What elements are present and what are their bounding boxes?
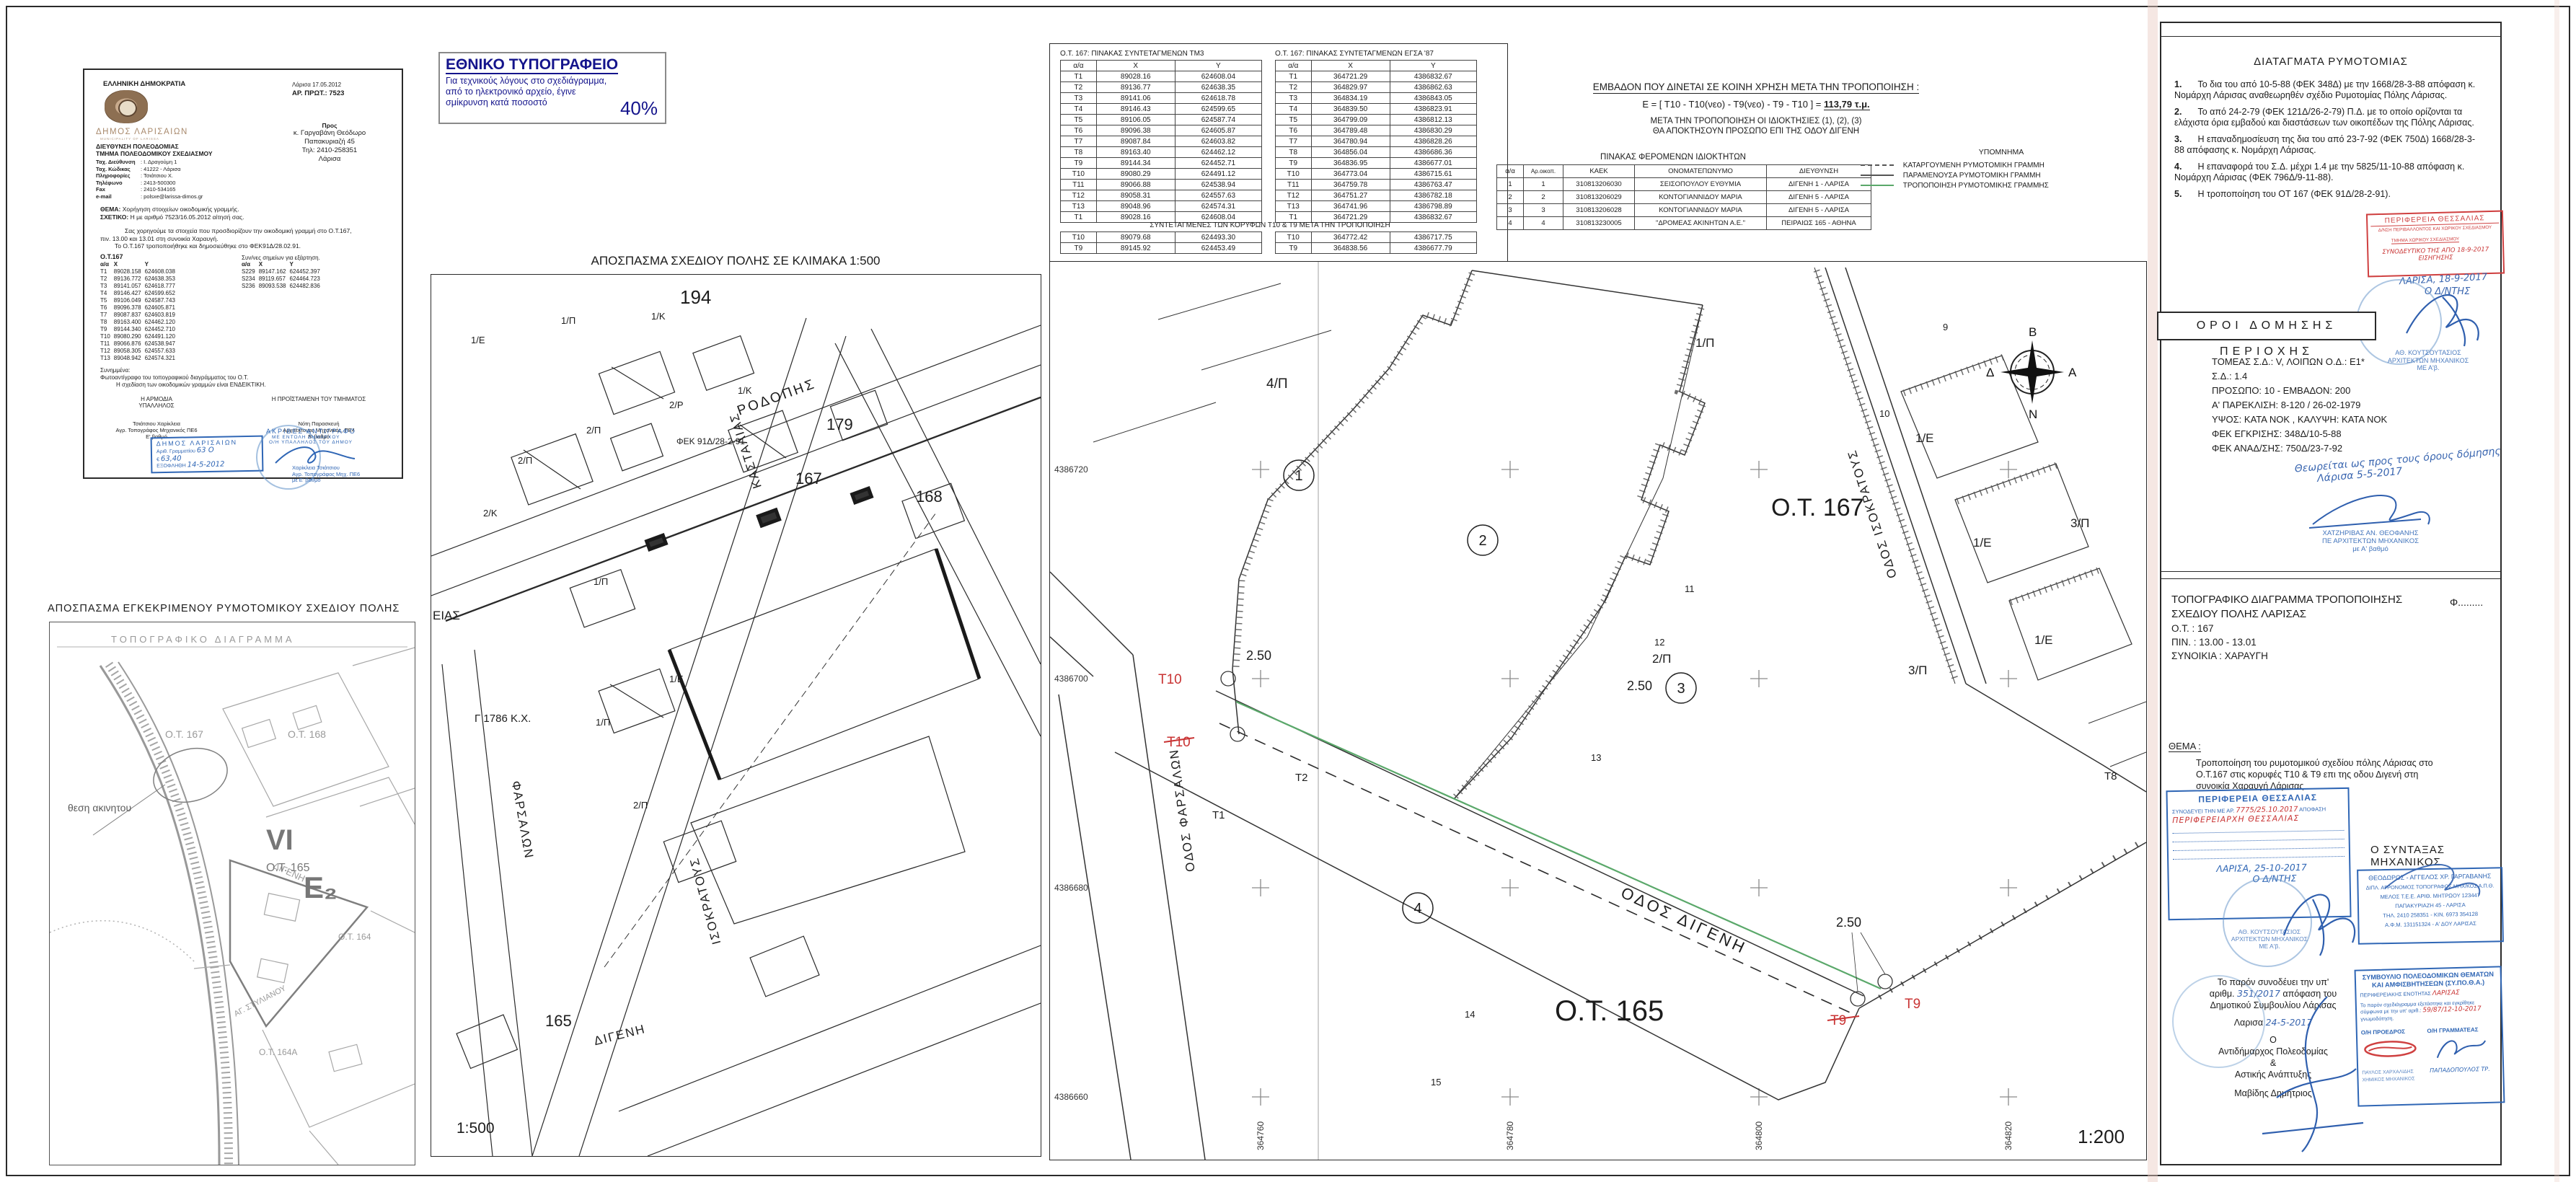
vertex-circles [1221,671,1892,1006]
building-term: Α' ΠΑΡΕΚΛΙΣΗ: 8-120 / 26-02-1979 [2212,398,2387,413]
svg-text:Γ 1786 Κ.Χ.: Γ 1786 Κ.Χ. [475,713,531,725]
svg-text:ΔΙΓΕΝΗ: ΔΙΓΕΝΗ [593,1022,648,1048]
building-terms-list: ΤΟΜΕΑΣ Σ.Δ.: V, ΛΟΙΠΩΝ Ο.Δ.: Ε1*Σ.Δ.: 1.… [2212,355,2387,456]
building-term: ΤΟΜΕΑΣ Σ.Δ.: V, ΛΟΙΠΩΝ Ο.Δ.: Ε1* [2212,355,2387,369]
legend-item-abolished: ΚΑΤΑΡΓΟΥΜΕΝΗ ΡΥΜΟΤΟΜΙΚΗ ΓΡΑΜΜΗ [1861,161,2142,171]
letter-contact-block: Ταχ. Διεύθυνση: Ι. Δραγούμη 1Ταχ. Κώδικα… [96,159,203,200]
letter-thema: ΘΕΜΑ: Χορήγηση στοιχείων οικοδομικής γρα… [100,206,239,213]
legend-title: ΥΠΟΜΝΗΜΑ [1861,148,2142,156]
ethniko-percent: 40% [620,97,658,120]
svg-text:1/Ε: 1/Ε [669,674,684,684]
letter-dept2: ΤΜΗΜΑ ΠΟΛΕΟΔΟΜΙΚΟΥ ΣΧΕΔΙΑΣΜΟΥ [96,150,213,157]
abolished-line [1219,723,1856,1015]
svg-text:2.50: 2.50 [1246,648,1271,663]
dashed-line-swatch [1861,164,1894,166]
signature-4 [2378,852,2486,903]
svg-text:VI: VI [266,824,294,856]
letter-attachments: Συνημμένα: Φωτοαντίγραφο του τοπογραφικο… [100,367,266,389]
svg-text:4386680: 4386680 [1054,883,1088,893]
building-terms-titlebox: ΟΡΟΙ ΔΟΜΗΣΗΣ ΠΕΡΙΟΧΗΣ [2157,312,2376,340]
area-formula: Ε = [ Τ10 - Τ10(νεο) - Τ9(νεο) - Τ9 - Τ1… [1507,99,2005,110]
sypotha-signatures [2361,1035,2492,1064]
svg-text:ΙΣΟΚΡΑΤΟΥΣ: ΙΣΟΚΡΑΤΟΥΣ [687,855,724,945]
letter-coord-row: Τ389141.057624618.777 [100,283,179,290]
svg-text:364760: 364760 [1256,1121,1266,1150]
svg-text:364800: 364800 [1754,1121,1764,1150]
signature-5 [2248,989,2370,1155]
tm3-row: Τ1189066.88624538.94 [1061,180,1262,190]
svg-text:Δ: Δ [1986,366,1994,379]
letter-sxetiko: ΣΧΕΤΙΚΟ: Η με αριθμό 7523/16.05.2012 αίτ… [100,213,244,221]
svg-text:179: 179 [826,415,853,433]
egsa-row: Τ8364856.044386686.36 [1276,147,1477,158]
modified-green-line [1236,702,1881,989]
svg-text:Ο.Τ. 164Α: Ο.Τ. 164Α [259,1047,297,1057]
sypotha-stamp: ΣΥΜΒΟΥΛΙΟ ΠΟΛΕΟΔΟΜΙΚΩΝ ΘΕΜΑΤΩΝ ΚΑΙ ΑΜΦΙΣ… [2355,966,2505,1106]
thema-text: Τροποποίηση του ρυμοτομικού σχεδίου πόλη… [2196,757,2470,792]
letter-protocol: ΑΡ. ΠΡΩΤ.: 7523 [292,89,344,97]
scan-artifact-band [2148,0,2158,1182]
letter-body: Σας χορηγούμε τα στοιχεία που προσδιορίζ… [100,227,389,250]
tm3-after-row: Τ1089079.68624493.30 [1061,232,1262,243]
svg-text:Ν: Ν [2029,407,2037,421]
svg-text:2: 2 [1478,533,1486,549]
approved-map-title: ΑΠΟΣΠΑΣΜΑ ΕΓΚΕΚΡΙΜΕΝΟΥ ΡΥΜΟΤΟΜΙΚΟΥ ΣΧΕΔΙ… [48,603,400,614]
svg-text:14: 14 [1465,1009,1475,1020]
tm3-after-table: Τ1089079.68624493.30Τ989145.92624453.49 [1060,231,1262,254]
tm3-row: Τ389141.06624618.78 [1061,93,1262,104]
svg-text:364780: 364780 [1505,1121,1515,1150]
building-term: ΥΨΟΣ: ΚΑΤΑ ΝΟΚ , ΚΑΛΥΨΗ: ΚΑΤΑ ΝΟΚ [2212,413,2387,427]
svg-text:1/Κ: 1/Κ [651,311,666,322]
svg-text:2/Π: 2/Π [518,455,532,466]
svg-text:ΑΓ. ΣΤΥΛΙΑΝΟΥ: ΑΓ. ΣΤΥΛΙΑΝΟΥ [233,984,288,1018]
building-term: ΠΡΟΣΩΠΟ: 10 - ΕΜΒΑΔΟΝ: 200 [2212,384,2387,398]
decree-item: 1.Το δια του από 10-5-88 (ΦΕΚ 348Δ) με τ… [2174,79,2484,101]
egsa-row: Τ5364799.094386812.13 [1276,115,1477,125]
letter-coord-row: Τ889163.400624462.120 [100,319,179,326]
approved-map-frame: ΤΟΠΟΓΡΑΦΙΚΟ ΔΙΑΓΡΑΜΜΑ Ο [49,622,415,1165]
thema-label: ΘΕΜΑ : [2169,741,2201,752]
svg-text:θεση ακινητου: θεση ακινητου [68,802,131,813]
svg-text:3: 3 [1677,681,1685,697]
ethniko-line1: Για τεχνικούς λόγους στο σχεδιάγραμμα, [446,76,659,87]
egsa-row: Τ1364721.294386832.67 [1276,71,1477,82]
fee-stamp: ΔΗΜΟΣ ΛΑΡΙΣΑΙΩΝ Αριθ. Γραμματίου 63 Ο € … [151,436,264,474]
tm3-row: Τ989144.34624452.71 [1061,158,1262,169]
tm3-row: Τ289136.77624638.35 [1061,82,1262,93]
svg-text:2/Π: 2/Π [1652,652,1671,666]
decrees-list: 1.Το δια του από 10-5-88 (ΦΕΚ 348Δ) με τ… [2174,79,2484,206]
letter-coord-row: Τ689096.378624605.871 [100,304,179,312]
svg-text:Τ10: Τ10 [1167,735,1191,750]
svg-text:1/Κ: 1/Κ [738,385,752,396]
topo-title-block: ΤΟΠΟΓΡΑΦΙΚΟ ΔΙΑΓΡΑΜΜΑ ΤΡΟΠΟΠΟΙΗΣΗΣ ΣΧΕΔΙ… [2171,593,2402,663]
letter-dep-row: S23689093.538624482.836 [242,283,324,290]
svg-text:Τ9: Τ9 [1830,1013,1846,1028]
letter-coord-row: Τ1089080.290624491.120 [100,333,179,340]
letter-date: Λάρισα 17.05.2012 [292,81,341,88]
tm3-title: Ο.Τ. 167: ΠΙΝΑΚΑΣ ΣΥΝΤΕΤΑΓΜΕΝΩΝ ΤΜ3 [1060,50,1204,58]
owner-row: 11310813206030ΣΕΙΣΟΠΟΥΛΟΥ ΕΥΘΥΜΙΑΔΙΓΕΝΗ … [1497,178,1871,191]
svg-text:1: 1 [1294,468,1302,484]
svg-text:2/Κ: 2/Κ [483,508,498,519]
tm3-after-row: Τ989145.92624453.49 [1061,243,1262,254]
svg-text:9: 9 [1943,322,1948,332]
svg-text:13: 13 [1591,752,1601,763]
svg-text:12: 12 [1654,637,1664,648]
svg-text:ΚΑΣΤΑΛΙΑΣ: ΚΑΣΤΑΛΙΑΣ [727,411,764,490]
svg-text:ΤΟΠΟΓΡΑΦΙΚΟ ΔΙΑΓΡΑΜΜΑ: ΤΟΠΟΓΡΑΦΙΚΟ ΔΙΑΓΡΑΜΜΑ [111,634,295,645]
svg-text:2.50: 2.50 [1627,679,1652,693]
svg-text:Ο.Τ. 168: Ο.Τ. 168 [288,728,326,740]
area-note: ΕΜΒΑΔΟΝ ΠΟΥ ΔΙΝΕΤΑΙ ΣΕ ΚΟΙΝΗ ΧΡΗΣΗ ΜΕΤΑ … [1507,81,2005,136]
copy-stamp-name: Χαρίκλεια ΤσιάτσιουΑγρ. Τοπογράφος Μηχ. … [292,465,360,484]
egsa-row: Τ12364751.274386782.18 [1276,190,1477,201]
letter-dep-table: α/αΧΥ S22989147.162624452.397S23489119.6… [242,261,324,290]
decree-item: 5.Η τροποποίηση του ΟΤ 167 (ΦΕΚ 91Δ/28-2… [2174,189,2484,200]
tm3-row: Τ889163.40624462.12 [1061,147,1262,158]
decrees-title: ΔΙΑΤΑΓΜΑΤΑ ΡΥΜΟΤΟΜΙΑΣ [2161,56,2500,68]
svg-text:1/Ε: 1/Ε [1973,536,1992,550]
svg-text:2/Ρ: 2/Ρ [669,400,684,410]
legend: ΥΠΟΜΝΗΜΑ ΚΑΤΑΡΓΟΥΜΕΝΗ ΡΥΜΟΤΟΜΙΚΗ ΓΡΑΜΜΗ … [1861,148,2142,191]
letter-coord-row: Τ1289058.305624557.633 [100,348,179,355]
coord-tables-panel: Ο.Τ. 167: ΠΙΝΑΚΑΣ ΣΥΝΤΕΤΑΓΜΕΝΩΝ ΤΜ3 α/αΧ… [1049,43,1508,267]
tm3-row: Τ689096.38624605.87 [1061,125,1262,136]
svg-text:1/Ε: 1/Ε [471,335,485,345]
svg-text:Β: Β [2029,325,2037,339]
architect-stamp: ΧΑΤΖΗΡΙΒΑΣ ΑΝ. ΘΕΟΦΑΝΗΣΠΕ ΑΡΧΙΤΕΚΤΩΝ ΜΗΧ… [2291,529,2450,553]
svg-text:Ο.Τ. 167: Ο.Τ. 167 [165,728,203,740]
scan-artifact-band-right [2554,0,2559,1182]
letter-coord-row: Τ489146.427624599.652 [100,290,179,297]
ethniko-line2: από το ηλεκτρονικό αρχείο, έγινε [446,87,659,97]
svg-text:4386660: 4386660 [1054,1092,1088,1102]
decree-item: 2.Το από 24-2-79 (ΦΕΚ 121Δ/26-2-79) Π.Δ.… [2174,107,2484,128]
map500-drawing: 1/Ε 1/Π 1/Κ 2/Π 2/Ρ 1/Κ 2/Π 2/Κ 1/Π 1/Π … [431,275,1041,1156]
svg-text:15: 15 [1431,1077,1441,1088]
svg-text:ΟΔΟΣ ΔΙΓΕΝΗ: ΟΔΟΣ ΔΙΓΕΝΗ [1618,883,1750,958]
letter-coord-row: Τ189028.158624608.038 [100,268,179,275]
letter-dept1: ΔΙΕΥΘΥΝΣΗ ΠΟΛΕΟΔΟΜΙΑΣ [96,143,179,150]
signature-3 [2273,878,2367,957]
egsa-row: Τ6364789.484386830.29 [1276,125,1477,136]
building-term: Σ.Δ.: 1.4 [2212,369,2387,384]
svg-text:1/Π: 1/Π [594,576,608,587]
national-printing-office-note: ΕΘΝΙΚΟ ΤΥΠΟΓΡΑΦΕΙΟ Για τεχνικούς λόγους … [438,52,666,124]
municipality-logo [105,90,148,123]
svg-text:1:500: 1:500 [456,1120,495,1137]
letter-dep-row: S22989147.162624452.397 [242,268,324,275]
svg-text:1/Ε: 1/Ε [2034,633,2053,647]
letter-municipality: ΔΗΜΟΣ ΛΑΡΙΣΑΙΩΝ [96,128,188,136]
svg-text:Τ2: Τ2 [1295,772,1308,784]
svg-text:1/Π: 1/Π [561,315,575,326]
svg-text:4386700: 4386700 [1054,674,1088,684]
building-term: ΦΕΚ ΕΓΚΡΙΣΗΣ: 348Δ/10-5-88 [2212,427,2387,441]
building-term: ΦΕΚ ΑΝΑΔ/ΣΗΣ: 750Δ/23-7-92 [2212,441,2387,456]
legend-item-remaining: ΠΑΡΑΜΕΝΟΥΣΑ ΡΥΜΟΤΟΜΙΚΗ ΓΡΑΜΜΗ [1861,171,2142,181]
signature-2 [2306,485,2435,535]
egsa-row: Τ2364829.974386862.63 [1276,82,1477,93]
tm3-row: Τ189028.16624608.04 [1061,71,1262,82]
egsa-after-table: Τ10364772.424386717.75Τ9364838.564386677… [1275,231,1477,254]
svg-text:ΦΑΡΣΑΛΩΝ: ΦΑΡΣΑΛΩΝ [509,780,537,860]
svg-text:ΟΔΟΣ ΦΑΡΣΑΛΩΝ: ΟΔΟΣ ΦΑΡΣΑΛΩΝ [1167,748,1198,873]
egsa-after-row: Τ10364772.424386717.75 [1276,232,1477,243]
letter-dep-row: S23489119.657624464.723 [242,275,324,283]
right-column: ΔΙΑΤΑΓΜΑΤΑ ΡΥΜΟΤΟΜΙΑΣ 1.Το δια του από 1… [2160,22,2502,1165]
svg-text:Τ10: Τ10 [1158,672,1182,687]
svg-text:Α: Α [2068,366,2077,379]
area-note-line2: ΘΑ ΑΠΟΚΤΗΣΟΥΝ ΠΡΟΣΩΠΟ ΕΠΙ ΤΗΣ ΟΔΟΥ ΔΙΓΕΝ… [1507,127,2005,136]
ethniko-title: ΕΘΝΙΚΟ ΤΥΠΟΓΡΑΦΕΙΟ [446,56,618,74]
signature-1 [2399,283,2493,348]
egsa-after-row: Τ9364838.564386677.79 [1276,243,1477,254]
letter-republic: ΕΛΛΗΝΙΚΗ ΔΗΜΟΚΡΑΤΙΑ [103,80,185,88]
solid-line-swatch [1861,175,1894,176]
letter-municipality-en: MUNICIPALITY OF LARISSA [100,137,159,141]
green-line-swatch [1861,185,1894,186]
svg-text:3/Π: 3/Π [1908,663,1927,677]
svg-text:4: 4 [1413,901,1421,917]
letter-left-role: Η ΑΡΜΟΔΙΑΥΠΑΛΛΗΛΟΣ [113,396,200,409]
letter-ot-heading: Ο.Τ.167 [100,253,123,260]
svg-text:Ο.Τ. 167: Ο.Τ. 167 [1771,494,1864,521]
egsa-row: Τ3364834.194386843.05 [1276,93,1477,104]
owner-row: 33310813206028ΚΟΝΤΟΓΙΑΝΝΙΔΟΥ ΜΑΡΙΑΔΙΓΕΝΗ… [1497,204,1871,217]
svg-text:364820: 364820 [2003,1121,2013,1150]
egsa-row: Τ10364773.044386715.61 [1276,169,1477,180]
letter-coord-row: Τ789087.837624603.819 [100,312,179,319]
svg-text:Ε₂: Ε₂ [304,870,338,904]
area-note-line1: ΜΕΤΑ ΤΗΝ ΤΡΟΠΟΠΟΙΗΣΗ ΟΙ ΙΔΙΟΚΤΗΣΙΕΣ (1),… [1507,117,2005,125]
legend-item-modified: ΤΡΟΠΟΠΟΙΗΣΗ ΡΥΜΟΤΟΜΙΚΗΣ ΓΡΑΜΜΗΣ [1861,181,2142,191]
letter-dep-heading: Συν/νες σημείων για εξάρτηση. [242,255,320,261]
svg-text:Ο.Τ. 164: Ο.Τ. 164 [338,932,371,942]
svg-text:1/Π: 1/Π [596,717,610,728]
owner-row: 44310813230005"ΔΡΟΜΕΑΣ ΑΚΙΝΗΤΩΝ Α.Ε."ΠΕΙ… [1497,217,1871,230]
tm3-row: Τ1289058.31624557.63 [1061,190,1262,201]
tm3-table: α/αΧΥ Τ189028.16624608.04Τ289136.7762463… [1060,60,1262,223]
svg-text:Τ8: Τ8 [2104,770,2117,782]
svg-text:3/Π: 3/Π [2070,516,2089,530]
svg-text:Τ9: Τ9 [1905,997,1920,1012]
owners-table-title: ΠΙΝΑΚΑΣ ΦΕΡΟΜΕΝΩΝ ΙΔΙΟΚΤΗΤΩΝ [1496,153,1850,162]
svg-text:2.50: 2.50 [1836,915,1861,930]
egsa-title: Ο.Τ. 167: ΠΙΝΑΚΑΣ ΣΥΝΤΕΤΑΓΜΕΝΩΝ ΕΓΣΑ '87 [1275,50,1434,58]
svg-text:10: 10 [1879,408,1889,419]
egsa-table: α/αΧΥ Τ1364721.294386832.67Τ2364829.9743… [1275,60,1477,223]
svg-text:11: 11 [1685,583,1695,594]
letter-coord-row: Τ289136.772624638.353 [100,275,179,283]
svg-text:2/Π: 2/Π [633,800,648,811]
after-modification-title: ΣΥΝΤΕΤΑΓΜΕΝΕΣ ΤΩΝ ΚΟΡΥΦΩΝ Τ10 & Τ9 ΜΕΤΑ … [1050,221,1490,229]
egsa-row: Τ13364741.964386798.89 [1276,201,1477,212]
map500-frame: 1/Ε 1/Π 1/Κ 2/Π 2/Ρ 1/Κ 2/Π 2/Κ 1/Π 1/Π … [431,274,1041,1157]
letter-coord-row: Τ1389048.942624574.321 [100,355,179,362]
tm3-row: Τ489146.43624599.65 [1061,104,1262,115]
decree-item: 3.Η επαναδημοσίευση της δια του από 23-7… [2174,134,2484,156]
letter-coord-row: Τ989144.340624452.710 [100,326,179,333]
svg-text:1/Ε: 1/Ε [1915,431,1934,445]
area-note-title: ΕΜΒΑΔΟΝ ΠΟΥ ΔΙΝΕΤΑΙ ΣΕ ΚΟΙΝΗ ΧΡΗΣΗ ΜΕΤΑ … [1593,81,1920,94]
tm3-row: Τ589106.05624587.74 [1061,115,1262,125]
letter-coord-row: Τ1189066.876624538.947 [100,340,179,348]
svg-text:Ο.Τ. 165: Ο.Τ. 165 [1555,995,1664,1027]
letter-coord-table: α/αΧΥ Τ189028.158624608.038Τ289136.77262… [100,261,179,362]
main-plan-drawing: 1 2 3 4 4/Π 1/Π 1/Ε 1/Ε 1/Ε 3/Π 3/Π 2/Π … [1050,262,2146,1160]
tm3-row: Τ789087.84624603.82 [1061,136,1262,147]
approved-map-drawing: ΤΟΠΟΓΡΑΦΙΚΟ ΔΙΑΓΡΑΜΜΑ Ο [50,622,415,1165]
tm3-row: Τ1089080.29624491.12 [1061,169,1262,180]
egsa-row: Τ7364780.944386828.26 [1276,136,1477,147]
egsa-row: Τ4364839.504386823.91 [1276,104,1477,115]
letter-right-role: Η ΠΡΟΪΣΤΑΜΕΝΗ ΤΟΥ ΤΜΗΜΑΤΟΣ [250,396,387,402]
svg-text:2/Π: 2/Π [586,425,601,436]
north-compass: Β Α Ν Δ [1986,325,2077,421]
svg-text:1:200: 1:200 [2078,1126,2125,1147]
topo-phi: Φ......... [2450,596,2483,608]
owner-row: 22310813206029ΚΟΝΤΟΓΙΑΝΝΙΔΟΥ ΜΑΡΙΑΔΙΓΕΝΗ… [1497,191,1871,204]
tm3-row: Τ1389048.96624574.31 [1061,201,1262,212]
main-plan-frame: 1 2 3 4 4/Π 1/Π 1/Ε 1/Ε 1/Ε 3/Π 3/Π 2/Π … [1049,261,2147,1160]
owners-table: α/α Αρ.οικοπ. ΚΑΕΚ ΟΝΟΜΑΤΕΠΩΝΥΜΟ ΔΙΕΥΘΥΝ… [1496,164,1871,230]
letter-recipient: Προς κ. Γαργαβάνη Θεόδωρο Παπακυριαζή 45… [268,122,391,164]
egsa-row: Τ9364836.954386677.01 [1276,158,1477,169]
svg-text:4386720: 4386720 [1054,464,1088,475]
svg-text:ΕΙΑΣ: ΕΙΑΣ [433,609,460,622]
svg-text:1/Π: 1/Π [1695,336,1714,350]
letter-coord-row: Τ589106.049624587.743 [100,297,179,304]
svg-text:167: 167 [795,469,822,488]
region-stamp-1: ΠΕΡΙΦΕΡΕΙΑ ΘΕΣΣΑΛΙΑΣ Δ/ΝΣΗ ΠΕΡΙΒΑΛΛΟΝΤΟΣ… [2366,211,2505,278]
svg-text:4/Π: 4/Π [1266,376,1288,392]
svg-text:194: 194 [680,286,711,308]
svg-text:168: 168 [916,488,943,506]
svg-text:165: 165 [545,1012,572,1030]
svg-text:Τ1: Τ1 [1212,809,1225,821]
egsa-row: Τ11364759.784386763.47 [1276,180,1477,190]
municipal-letter: ΕΛΛΗΝΙΚΗ ΔΗΜΟΚΡΑΤΙΑ ΔΗΜΟΣ ΛΑΡΙΣΑΙΩΝ MUNI… [83,69,403,479]
decree-item: 4.Η επαναφορά του Σ.Δ. μέχρι 1.4 με την … [2174,162,2484,183]
map500-title: ΑΠΟΣΠΑΣΜΑ ΣΧΕΔΙΟΥ ΠΟΛΗΣ ΣΕ ΚΛΙΜΑΚΑ 1:500 [462,254,1010,268]
